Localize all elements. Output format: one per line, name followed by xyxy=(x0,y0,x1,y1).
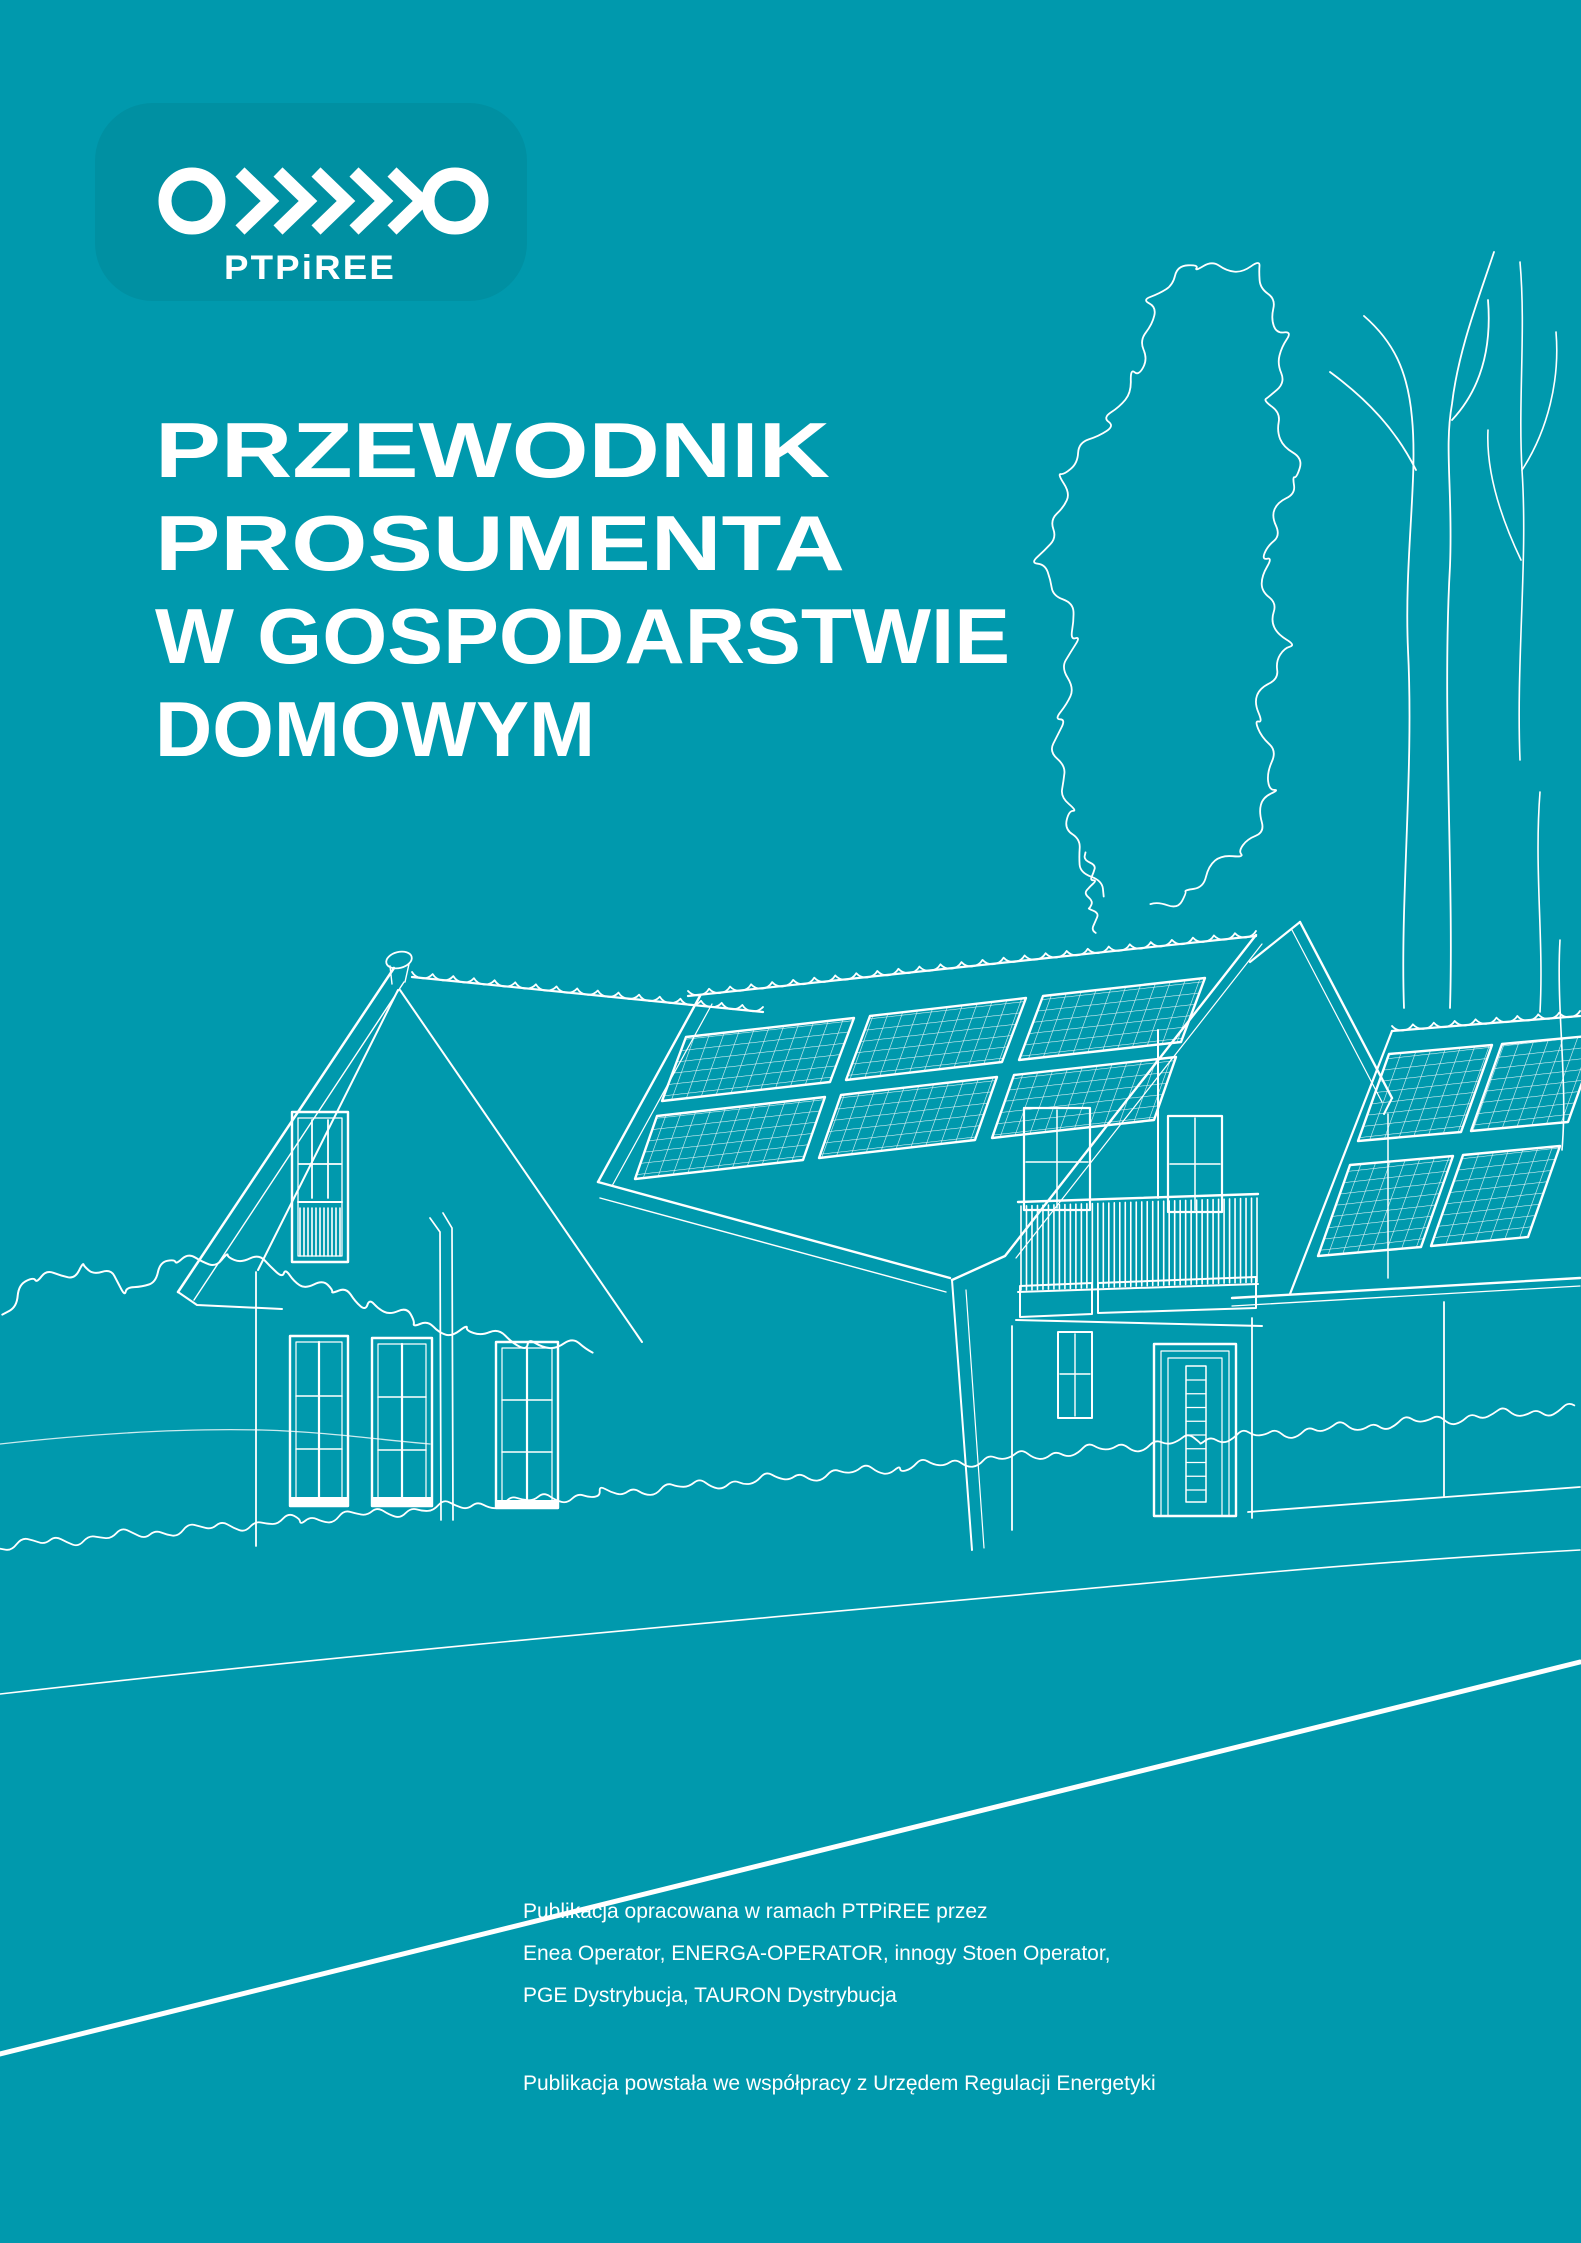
cover-title-line: DOMOWYM xyxy=(155,685,595,773)
cover-title-line: PROSUMENTA xyxy=(155,499,845,587)
cover-title-line: W GOSPODARSTWIE xyxy=(155,592,1010,680)
credits-line: Enea Operator, ENERGA-OPERATOR, innogy S… xyxy=(523,1942,1111,1965)
credits-line: Publikacja opracowana w ramach PTPiREE p… xyxy=(523,1900,988,1923)
ptpiree-wordmark: PTPiREE xyxy=(224,249,396,287)
cover: PTPiREE PRZEWODNIK PROSUMENTA W GOSPODAR… xyxy=(0,0,1581,2243)
credits-line: PGE Dystrybucja, TAURON Dystrybucja xyxy=(523,1984,897,2007)
cooperation-line: Publikacja powstała we współpracy z Urzę… xyxy=(523,2072,1156,2095)
cover-title-line: PRZEWODNIK xyxy=(155,406,830,494)
cover-canvas: PTPiREE PRZEWODNIK PROSUMENTA W GOSPODAR… xyxy=(0,0,1581,2243)
